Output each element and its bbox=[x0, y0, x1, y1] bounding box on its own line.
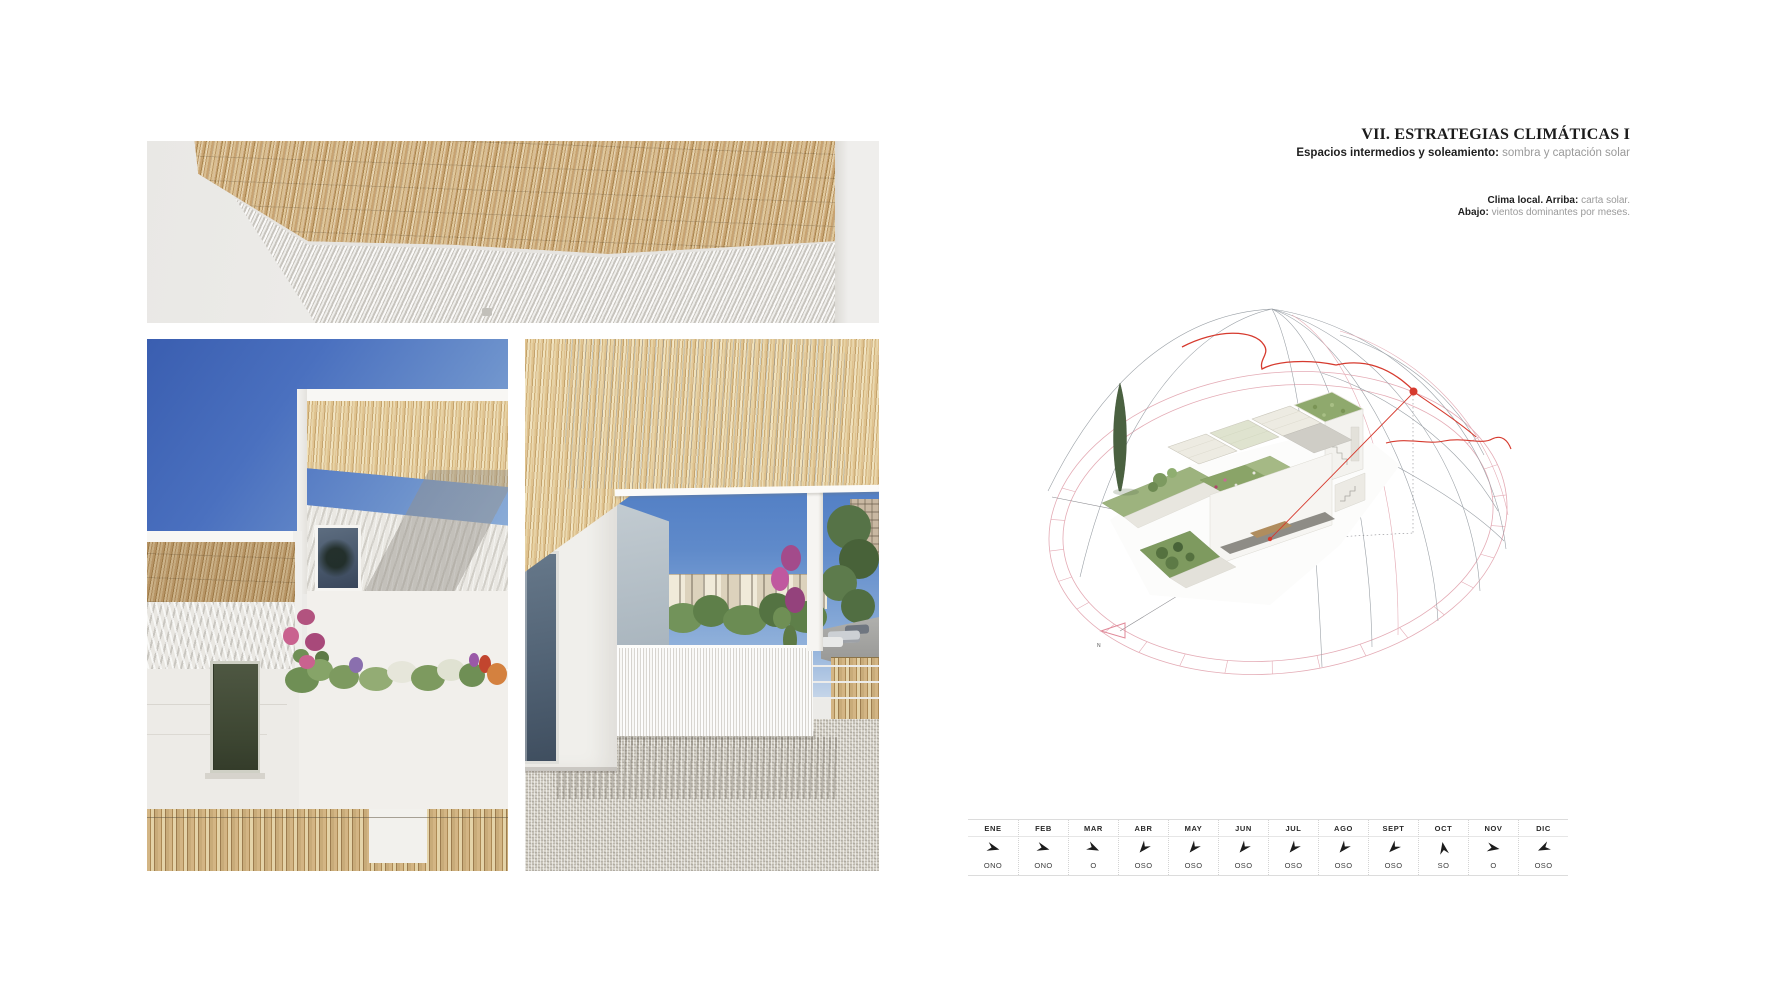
window-glass bbox=[318, 528, 358, 588]
wind-month-label: ENE bbox=[968, 820, 1018, 837]
bougainvillea-climber bbox=[763, 545, 813, 661]
wind-month-column: ABROSO bbox=[1118, 820, 1168, 875]
garden-bush bbox=[1167, 468, 1177, 478]
wind-month-label: MAY bbox=[1169, 820, 1218, 837]
wind-direction-label: OSO bbox=[1119, 858, 1168, 875]
wind-month-column: MARO bbox=[1068, 820, 1118, 875]
house-axonometric bbox=[1102, 383, 1400, 605]
glass-door-pane bbox=[525, 554, 556, 761]
wind-month-column: DICOSO bbox=[1518, 820, 1568, 875]
railing-cable-3 bbox=[809, 697, 879, 699]
page-title: VII. ESTRATEGIAS CLIMÁTICAS I bbox=[1296, 126, 1630, 144]
wind-direction-label: SO bbox=[1419, 858, 1468, 875]
door-step-shadow bbox=[205, 773, 265, 779]
wind-month-label: SEPT bbox=[1369, 820, 1418, 837]
wind-month-column: JULOSO bbox=[1268, 820, 1318, 875]
photo-facade-cane-shading bbox=[147, 339, 508, 871]
wind-table: ENEONOFEBONOMAROABROSOMAYOSOJUNOSOJULOSO… bbox=[968, 819, 1568, 876]
green-door-panel bbox=[213, 664, 258, 770]
wind-month-column: ENEONO bbox=[968, 820, 1018, 875]
caption-line-2: Abajo: vientos dominantes por meses. bbox=[1458, 207, 1630, 219]
wind-month-column: SEPTOSO bbox=[1368, 820, 1418, 875]
shaded-blue-wall bbox=[617, 497, 669, 649]
reed-ceiling-sky-slivers bbox=[565, 339, 845, 489]
wind-month-column: AGOOSO bbox=[1318, 820, 1368, 875]
wind-direction-label: ONO bbox=[968, 858, 1018, 875]
subtitle-bold: Espacios intermedios y soleamiento: bbox=[1296, 147, 1499, 159]
wind-month-label: MAR bbox=[1069, 820, 1118, 837]
wind-direction-arrow-icon bbox=[1219, 837, 1268, 858]
flower-planter-band bbox=[285, 653, 508, 699]
caption-line-1: Clima local. Arriba: carta solar. bbox=[1458, 195, 1630, 207]
left-wall-base-shadow bbox=[525, 767, 617, 773]
fence-wire bbox=[147, 817, 508, 818]
wind-table-columns: ENEONOFEBONOMAROABROSOMAYOSOJUNOSOJULOSO… bbox=[968, 820, 1568, 875]
wind-month-label: NOV bbox=[1469, 820, 1518, 837]
wind-direction-label: OSO bbox=[1519, 858, 1568, 875]
wind-month-label: ABR bbox=[1119, 820, 1168, 837]
page-subtitle: Espacios intermedios y soleamiento: somb… bbox=[1296, 147, 1630, 160]
wind-direction-label: ONO bbox=[1019, 858, 1068, 875]
wind-direction-label: O bbox=[1069, 858, 1118, 875]
wind-direction-arrow-icon bbox=[1469, 837, 1518, 858]
wind-direction-arrow-icon bbox=[968, 837, 1018, 858]
glass-door bbox=[525, 551, 559, 764]
wind-direction-arrow-icon bbox=[1369, 837, 1418, 858]
wind-month-label: DIC bbox=[1519, 820, 1568, 837]
wind-direction-label: OSO bbox=[1269, 858, 1318, 875]
cypress-tree bbox=[1113, 383, 1126, 491]
wind-direction-label: O bbox=[1469, 858, 1518, 875]
wind-month-label: OCT bbox=[1419, 820, 1468, 837]
subtitle-regular: sombra y captación solar bbox=[1499, 147, 1630, 159]
wall-drain-detail bbox=[482, 308, 492, 316]
wind-direction-arrow-icon bbox=[1319, 837, 1368, 858]
portfolio-sheet: { "header": { "title": "VII. ESTRATEGIAS… bbox=[0, 0, 1778, 1000]
streaked-parapet bbox=[617, 645, 813, 736]
reed-canopy-shade bbox=[147, 542, 295, 602]
wind-month-label: JUL bbox=[1269, 820, 1318, 837]
wind-direction-label: OSO bbox=[1319, 858, 1368, 875]
wind-direction-arrow-icon bbox=[1019, 837, 1068, 858]
wind-direction-arrow-icon bbox=[1069, 837, 1118, 858]
parked-car-white bbox=[821, 637, 843, 647]
wind-month-column: JUNOSO bbox=[1218, 820, 1268, 875]
railing-cable-2 bbox=[809, 681, 879, 683]
figure-caption: Clima local. Arriba: carta solar. Abajo:… bbox=[1458, 195, 1630, 218]
wind-direction-arrow-icon bbox=[1269, 837, 1318, 858]
pergola-column bbox=[807, 489, 823, 651]
photo-terrace-pergola bbox=[525, 339, 879, 871]
window-slit bbox=[1351, 427, 1359, 461]
right-wall-panel bbox=[835, 141, 879, 323]
wind-direction-arrow-icon bbox=[1169, 837, 1218, 858]
sun-position-dot bbox=[1410, 388, 1418, 396]
solar-chart-diagram: N bbox=[1040, 295, 1520, 695]
wind-month-label: AGO bbox=[1319, 820, 1368, 837]
railing-cable-1 bbox=[809, 665, 879, 667]
right-side-trees bbox=[821, 505, 879, 635]
target-point-dot bbox=[1268, 537, 1272, 541]
north-label: N bbox=[1097, 643, 1101, 649]
wind-direction-arrow-icon bbox=[1519, 837, 1568, 858]
photo-pergola-underside bbox=[147, 141, 879, 323]
wind-month-column: FEBONO bbox=[1018, 820, 1068, 875]
wind-direction-arrow-icon bbox=[1419, 837, 1468, 858]
wind-month-column: NOVO bbox=[1468, 820, 1518, 875]
wind-direction-label: OSO bbox=[1169, 858, 1218, 875]
wind-month-label: JUN bbox=[1219, 820, 1268, 837]
green-door bbox=[210, 661, 260, 773]
cypress-shadow bbox=[1113, 489, 1139, 496]
window bbox=[315, 525, 361, 591]
wind-direction-label: OSO bbox=[1369, 858, 1418, 875]
wind-direction-label: OSO bbox=[1219, 858, 1268, 875]
wind-direction-arrow-icon bbox=[1119, 837, 1168, 858]
wind-month-column: MAYOSO bbox=[1168, 820, 1218, 875]
wind-month-column: OCTSO bbox=[1418, 820, 1468, 875]
cane-fence bbox=[147, 809, 508, 871]
sun-path-curve-right bbox=[1386, 437, 1511, 449]
wind-month-label: FEB bbox=[1019, 820, 1068, 837]
upper-fascia-beam bbox=[297, 389, 508, 402]
garden-bush bbox=[1148, 482, 1158, 492]
page-header: VII. ESTRATEGIAS CLIMÁTICAS I Espacios i… bbox=[1296, 126, 1630, 160]
sun-path-descent bbox=[1414, 392, 1476, 437]
